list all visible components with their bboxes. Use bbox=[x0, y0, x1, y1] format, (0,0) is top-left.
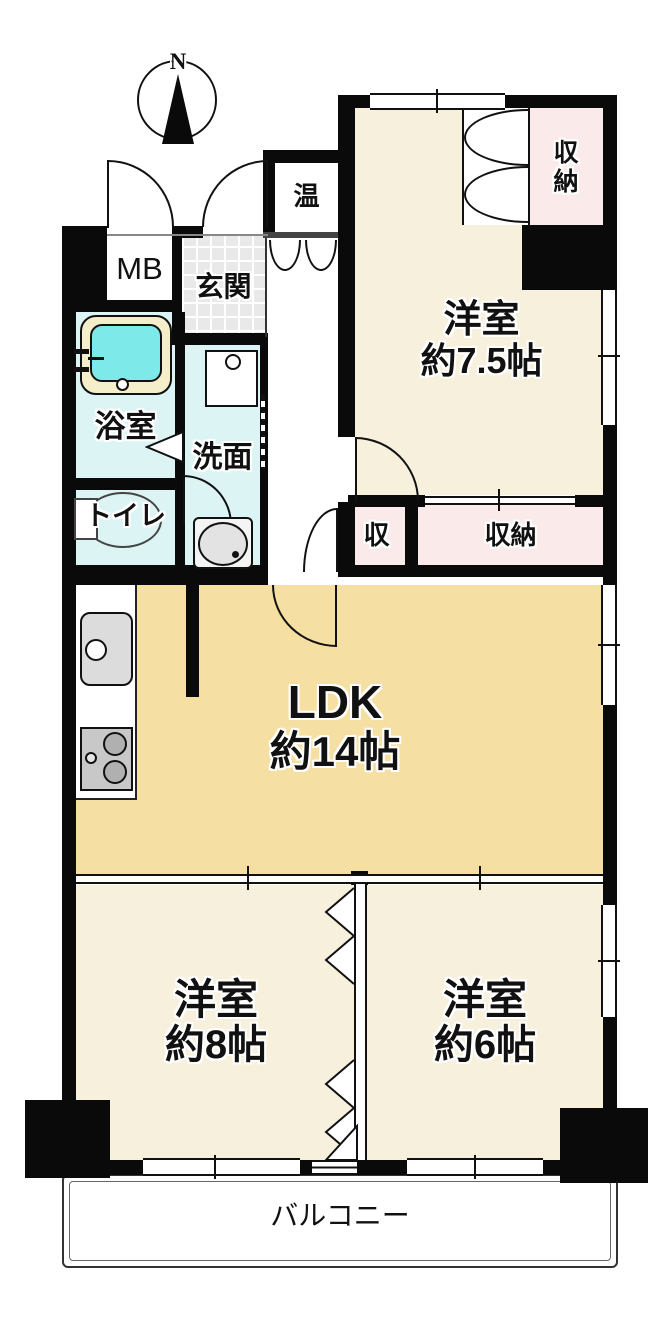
slider-tick bbox=[479, 866, 481, 890]
balcony-sliding-door bbox=[312, 1160, 357, 1175]
wall bbox=[575, 495, 605, 507]
room-name: 洋室 bbox=[174, 976, 258, 1023]
window-tick bbox=[436, 89, 438, 113]
floor-plan: N bbox=[0, 0, 669, 1323]
sink-faucet-icon bbox=[85, 639, 107, 661]
window-tick bbox=[474, 1155, 476, 1179]
label-closet-top-right: 収納 bbox=[544, 124, 584, 212]
label-toilet: トイレ bbox=[76, 499, 175, 533]
entrance-door-panel-right bbox=[266, 160, 268, 228]
compass-north-label: N bbox=[159, 48, 197, 76]
label-hot-water: 温 bbox=[275, 182, 338, 212]
western-7-5-door-panel bbox=[355, 437, 357, 503]
entrance-door-arc-right bbox=[202, 160, 268, 227]
label-washroom: 洗面 bbox=[185, 441, 260, 475]
room-size: 約6帖 bbox=[434, 1023, 536, 1068]
label-meter-box: MB bbox=[107, 251, 172, 287]
window-tick bbox=[598, 960, 620, 962]
wall bbox=[62, 478, 175, 490]
wall bbox=[543, 1160, 568, 1175]
toilet-flush-dot-icon bbox=[232, 551, 239, 558]
wall bbox=[62, 226, 76, 1110]
label-storage-wide: 収納 bbox=[418, 520, 603, 552]
wall bbox=[405, 505, 418, 567]
stove-knob-icon bbox=[85, 752, 97, 764]
wall-block bbox=[560, 1108, 648, 1183]
window-tick bbox=[598, 644, 620, 646]
wall bbox=[300, 1160, 312, 1175]
entrance-threshold bbox=[107, 234, 268, 236]
door-gap-western-7-5 bbox=[338, 437, 355, 502]
wall bbox=[338, 565, 615, 577]
window bbox=[601, 290, 617, 425]
bath-faucet-icon bbox=[74, 349, 89, 354]
wall bbox=[263, 150, 348, 163]
bathtub-drain-icon bbox=[116, 378, 129, 391]
bath-faucet-icon bbox=[74, 367, 89, 372]
room-size: 約14帖 bbox=[270, 728, 401, 775]
room-name: 洋室 bbox=[443, 299, 519, 342]
room-size: 約7.5帖 bbox=[420, 341, 542, 381]
wall bbox=[338, 95, 355, 437]
entrance-step-line bbox=[265, 238, 267, 337]
window bbox=[143, 1158, 300, 1176]
wall bbox=[62, 1160, 143, 1175]
bath-faucet-spout-icon bbox=[88, 357, 104, 360]
wall bbox=[175, 333, 268, 345]
wall bbox=[62, 300, 175, 312]
entrance-door-panel-left bbox=[107, 160, 109, 228]
stove-burner-icon bbox=[103, 732, 127, 756]
slider-tick bbox=[247, 866, 249, 890]
bathtub-water bbox=[90, 324, 162, 382]
label-balcony: バルコニー bbox=[62, 1198, 618, 1234]
washroom-door-panel bbox=[183, 475, 185, 525]
partition-door-triangle bbox=[324, 1124, 359, 1162]
label-western-6: 洋室 約6帖 bbox=[367, 966, 603, 1078]
label-storage-small: 収 bbox=[348, 520, 405, 552]
wall-block bbox=[522, 225, 607, 290]
wall bbox=[357, 1160, 407, 1175]
closet-sliding-door bbox=[425, 496, 575, 505]
room-name: 洋室 bbox=[443, 976, 527, 1023]
label-western-8: 洋室 約8帖 bbox=[78, 966, 354, 1078]
toilet-bowl bbox=[198, 522, 248, 566]
wall-thin bbox=[263, 232, 338, 238]
room-name: LDK bbox=[288, 677, 383, 729]
wall bbox=[603, 705, 617, 905]
window-tick bbox=[214, 1155, 216, 1179]
label-entrance: 玄関 bbox=[182, 270, 265, 304]
stove-burner-icon bbox=[103, 760, 127, 784]
washbasin-faucet-icon bbox=[225, 354, 241, 370]
label-western-7-5: 洋室 約7.5帖 bbox=[360, 292, 603, 388]
entrance-door-arc-left bbox=[108, 160, 174, 227]
wall bbox=[603, 425, 617, 585]
washer-dashed-line bbox=[261, 395, 265, 470]
room-size: 約8帖 bbox=[165, 1023, 267, 1068]
corridor-door-panel bbox=[336, 508, 338, 572]
ldk-bedroom-sliding-door bbox=[76, 874, 603, 884]
slider-tick bbox=[498, 489, 500, 511]
label-ldk: LDK 約14帖 bbox=[180, 670, 490, 782]
ldk-door-panel bbox=[335, 585, 337, 647]
compass-needle-icon bbox=[149, 70, 207, 146]
label-bathroom: 浴室 bbox=[76, 409, 175, 445]
